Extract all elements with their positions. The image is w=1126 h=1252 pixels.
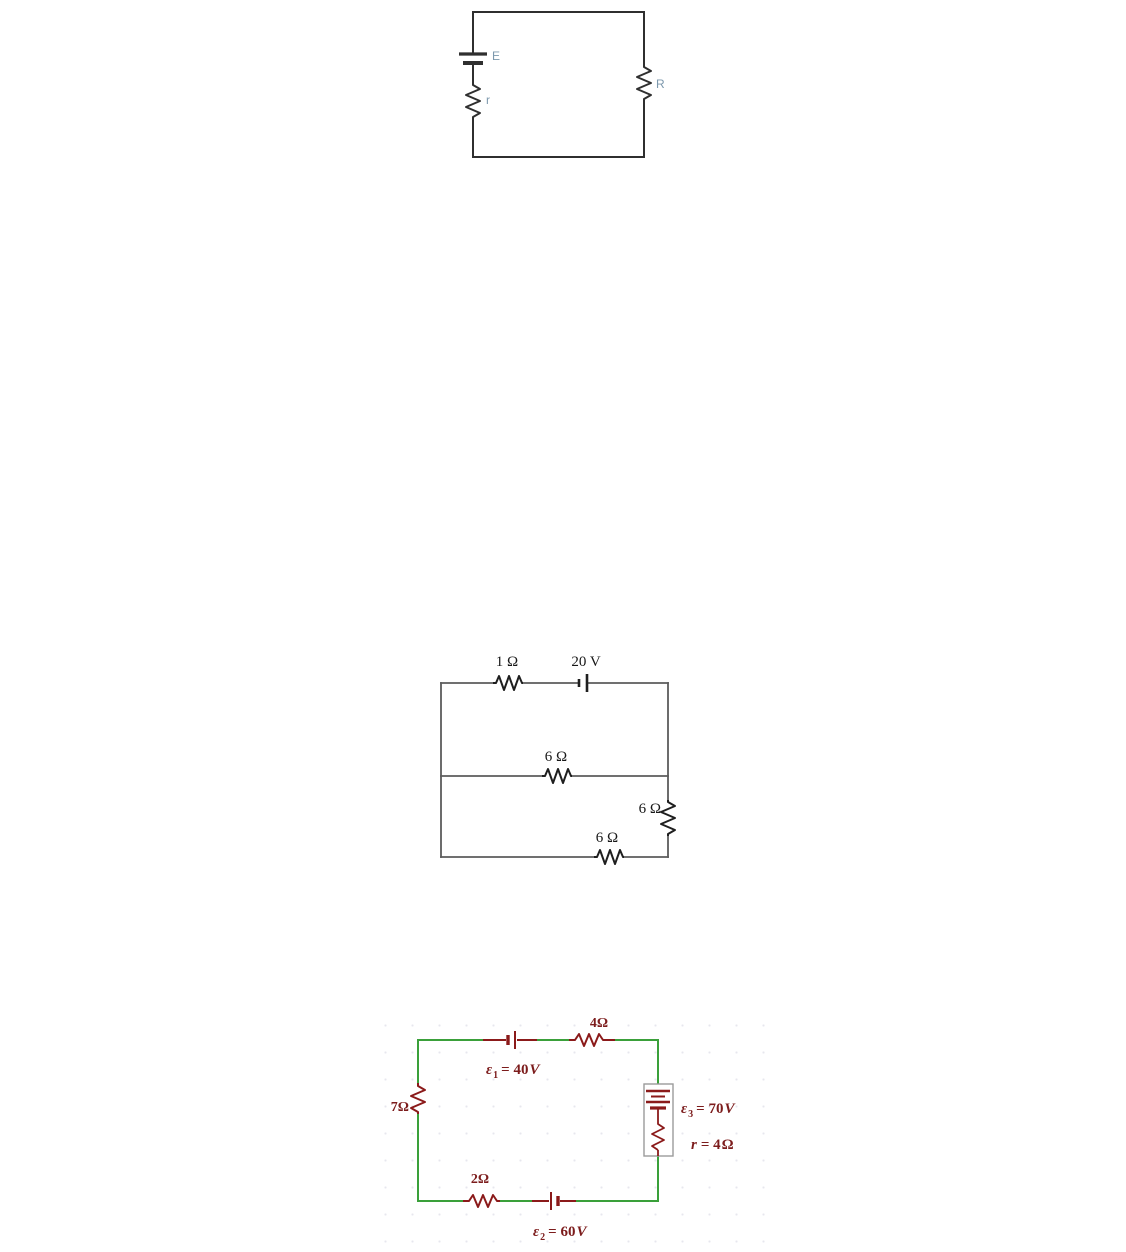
internal-resistance-label: r	[486, 94, 490, 107]
emf3-subscript: 3	[688, 1109, 693, 1120]
internal-resistance-label: r= 4Ω	[691, 1137, 734, 1153]
battery-voltage-label: 20 V	[566, 654, 606, 670]
right-resistor-icon	[661, 800, 675, 836]
emf2-subscript: 2	[540, 1232, 545, 1243]
top-resistor-icon	[493, 676, 523, 690]
internal-r-value: = 4	[701, 1137, 721, 1153]
internal-resistor-icon	[466, 83, 480, 120]
emf2-label: ε2= 60V	[533, 1224, 587, 1246]
circuit1-diagram	[455, 5, 675, 165]
emf1-unit: V	[529, 1062, 539, 1078]
middle-resistor-label: 6 Ω	[536, 749, 576, 765]
emf2-symbol: ε	[533, 1224, 539, 1240]
bottom-resistor-icon	[594, 850, 624, 864]
load-resistor-icon	[637, 65, 651, 103]
top-resistor-icon	[569, 1034, 615, 1046]
emf1-subscript: 1	[493, 1070, 498, 1081]
bottom-resistor-icon	[463, 1195, 500, 1207]
top-resistor-label: 1 Ω	[487, 654, 527, 670]
worksheet-canvas: E r R 1 Ω 20 V 6 Ω 6 Ω 6 Ω	[0, 0, 1126, 1252]
emf3-value: = 70	[696, 1101, 723, 1117]
emf1-value: = 40	[501, 1062, 528, 1078]
bottom-resistor-label: 6 Ω	[587, 830, 627, 846]
emf1-battery-icon	[483, 1031, 537, 1049]
emf3-symbol: ε	[681, 1101, 687, 1117]
emf2-unit: V	[576, 1224, 586, 1240]
left-resistor-label: 7Ω	[369, 1100, 409, 1116]
emf-label: E	[492, 50, 500, 63]
emf2-value: = 60	[548, 1224, 575, 1240]
top-resistor-label: 4Ω	[579, 1016, 619, 1032]
emf2-battery-icon	[532, 1192, 576, 1210]
middle-resistor-icon	[542, 769, 572, 783]
load-resistor-label: R	[656, 78, 665, 91]
battery-icon	[459, 54, 487, 63]
emf3-label: ε3= 70V	[681, 1101, 735, 1123]
internal-r-symbol: r	[691, 1137, 697, 1153]
emf1-symbol: ε	[486, 1062, 492, 1078]
bottom-resistor-label: 2Ω	[460, 1172, 500, 1188]
emf3-unit: V	[724, 1101, 734, 1117]
left-resistor-icon	[411, 1083, 425, 1114]
right-resistor-label: 6 Ω	[621, 801, 661, 817]
internal-r-unit: Ω	[722, 1137, 734, 1153]
battery-icon	[579, 674, 587, 692]
circuit1-wires	[473, 12, 644, 157]
circuit2-wires	[441, 683, 668, 857]
emf1-label: ε1= 40V	[486, 1062, 540, 1084]
